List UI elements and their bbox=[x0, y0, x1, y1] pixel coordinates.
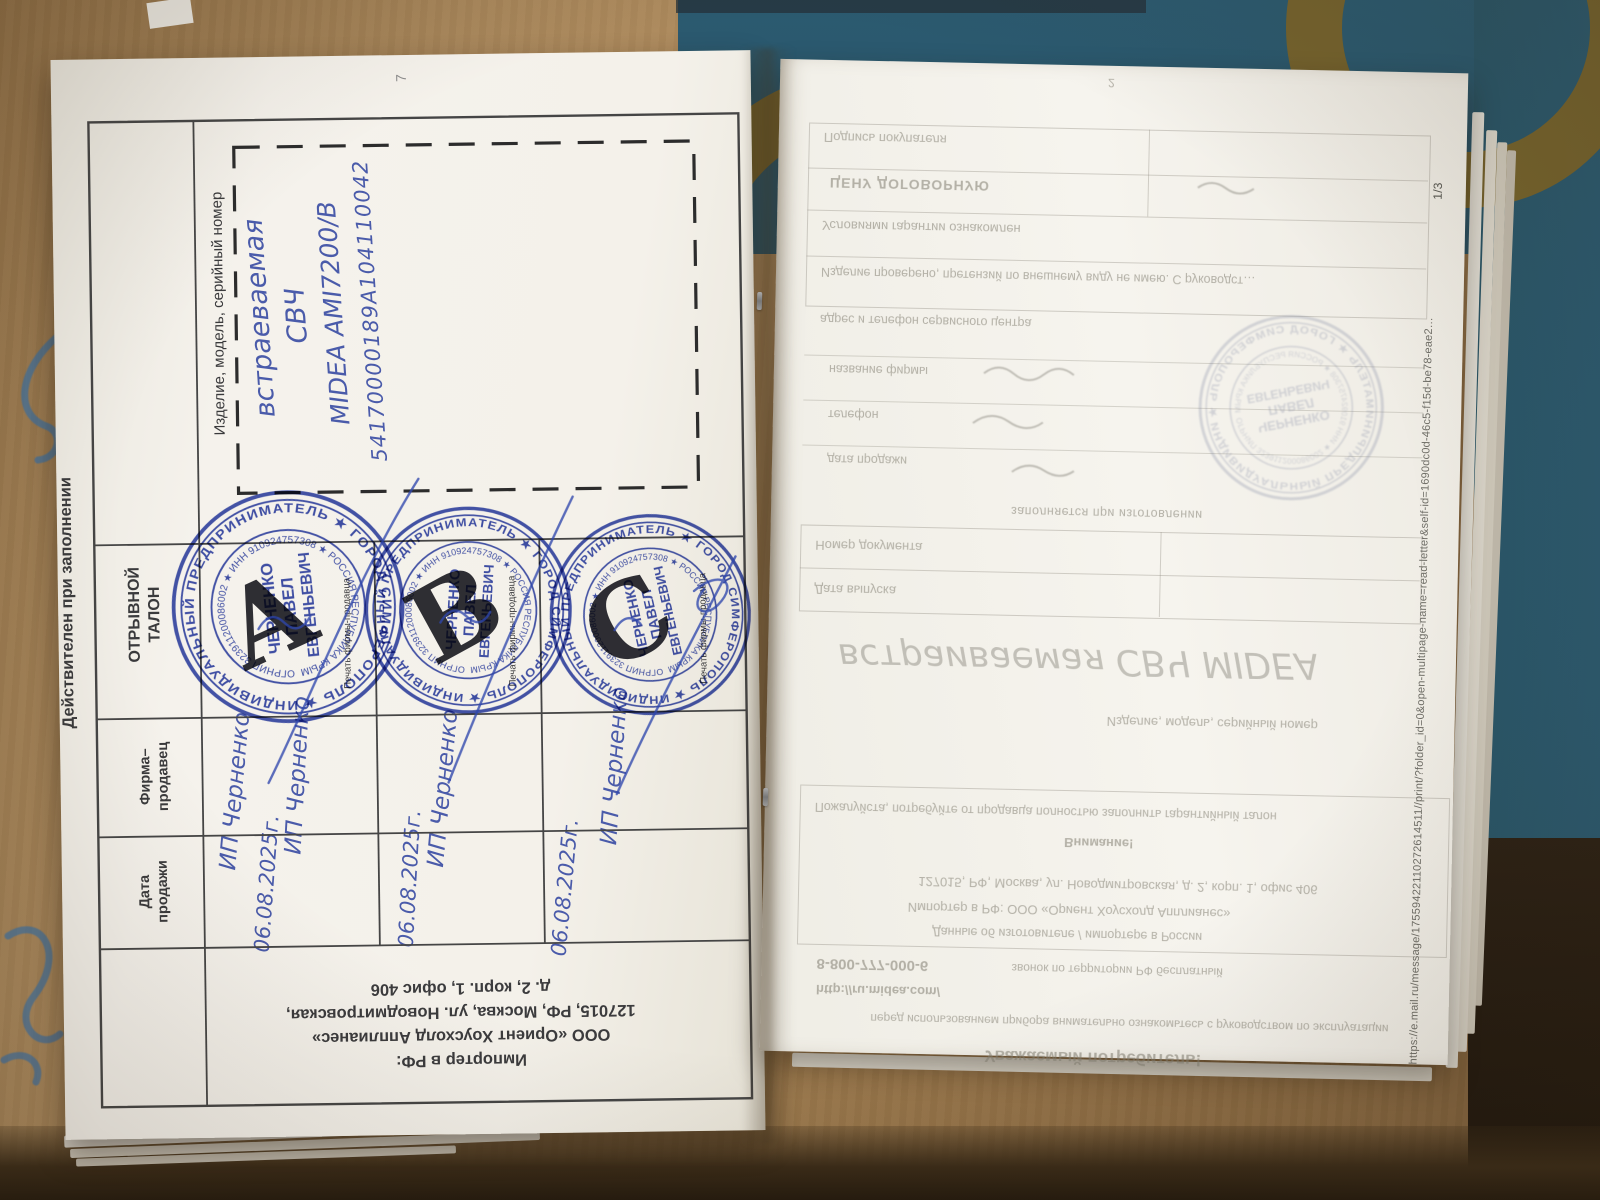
faint-handwriting-scribbles bbox=[760, 59, 1469, 1065]
photo-scene: 7 Действителен при заполнении Изделие, м… bbox=[0, 0, 1600, 1200]
printed-email-top-sheet: 2 Подпись покупателя ЦЕНУ ДОГОВОРНУЮ Усл… bbox=[760, 59, 1469, 1065]
staple-top bbox=[757, 292, 763, 310]
print-page-indicator: 1/3 bbox=[1431, 170, 1446, 200]
staple-bottom bbox=[763, 788, 769, 806]
pen-signature-strokes bbox=[50, 50, 765, 1140]
warranty-booklet-left-page: 7 Действителен при заполнении Изделие, м… bbox=[50, 50, 765, 1140]
faint-show-through-stamp: ИНДИВИДУАЛЬНЫЙ ПРЕДПРИНИМАТЕЛЬ ★ ГОРОД С… bbox=[1181, 298, 1401, 518]
booklet-spine-shadow bbox=[742, 48, 794, 1144]
